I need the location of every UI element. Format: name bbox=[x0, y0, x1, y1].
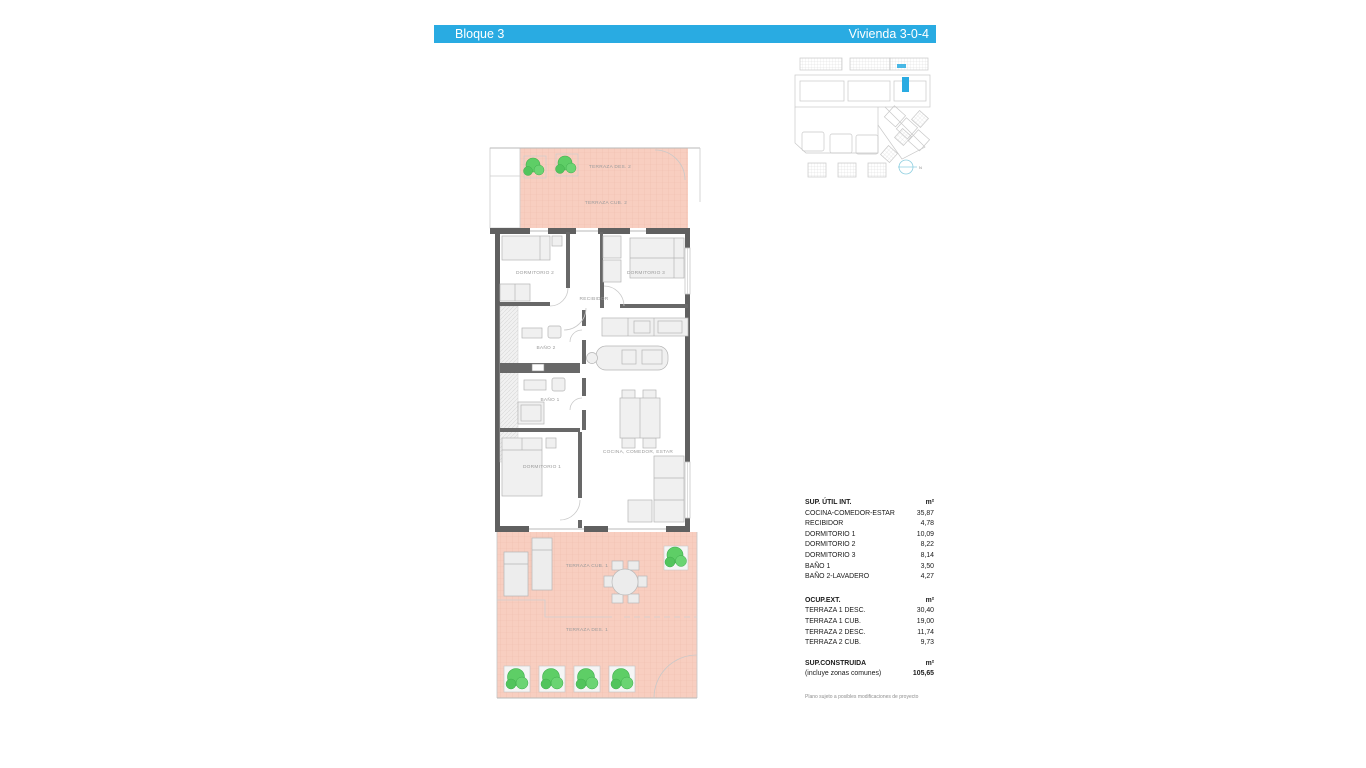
block-label: Bloque 3 bbox=[434, 27, 504, 41]
terraza-des-2-label: TERRAZA DES. 2 bbox=[589, 164, 631, 170]
terraza-cub-1-label: TERRAZA CUB. 1 bbox=[566, 563, 608, 569]
table-title: OCUP.EXT. bbox=[805, 597, 840, 604]
plant-icon bbox=[664, 546, 688, 570]
kitchen-counter bbox=[602, 318, 688, 336]
table-header: SUP.CONSTRUIDA m² bbox=[805, 660, 934, 671]
sofa bbox=[628, 456, 684, 522]
terraza-des-1-label: TERRAZA DES. 1 bbox=[566, 627, 608, 633]
bano-1-label: BAÑO 1 bbox=[540, 396, 559, 403]
table-row: RECIBIDOR4,78 bbox=[805, 520, 934, 531]
total-built-area: 105,65 bbox=[913, 670, 934, 677]
table-row: TERRAZA 1 DESC.30,40 bbox=[805, 607, 934, 618]
table-title: SUP.CONSTRUIDA bbox=[805, 660, 866, 667]
plant-icon bbox=[539, 666, 565, 692]
dormitorio-1-label: DORMITORIO 1 bbox=[523, 464, 561, 470]
floor-plan: TERRAZA DES. 2 TERRAZA CUB. 2 bbox=[488, 140, 702, 700]
table-header: SUP. ÚTIL INT. m² bbox=[805, 499, 934, 510]
table-unit: m² bbox=[926, 499, 934, 506]
site-key-plan: N bbox=[790, 55, 935, 185]
surface-tables: SUP. ÚTIL INT. m² COCINA-COMEDOR-ESTAR35… bbox=[805, 499, 934, 700]
neighbor-strip bbox=[490, 148, 520, 228]
recibidor-label: RECIBIDOR bbox=[580, 296, 609, 302]
north-arrow-icon: N bbox=[898, 160, 922, 174]
table-unit: m² bbox=[926, 660, 934, 667]
dining-table bbox=[620, 390, 660, 448]
terraza-cub-2-label: TERRAZA CUB. 2 bbox=[585, 200, 627, 206]
kitchen-island bbox=[587, 346, 669, 370]
bano-2-label: BAÑO 2 bbox=[536, 344, 555, 351]
bed bbox=[502, 236, 562, 260]
wardrobe bbox=[603, 236, 621, 282]
table-row: BAÑO 2-LAVADERO4,27 bbox=[805, 573, 934, 584]
svg-text:N: N bbox=[919, 165, 922, 170]
table-row: COCINA-COMEDOR-ESTAR35,87 bbox=[805, 510, 934, 521]
table-unit: m² bbox=[926, 597, 934, 604]
table-row: TERRAZA 2 DESC.11,74 bbox=[805, 629, 934, 640]
plant-icon bbox=[609, 666, 635, 692]
table-row: TERRAZA 2 CUB.9,73 bbox=[805, 639, 934, 650]
table-row: (incluye zonas comunes) 105,65 bbox=[805, 670, 934, 681]
terrace-2-area bbox=[520, 148, 688, 228]
unit-highlight-terrace bbox=[897, 64, 906, 68]
bathroom-fixtures bbox=[522, 326, 561, 338]
cocina-label: COCINA, COMEDOR, ESTAR bbox=[603, 449, 673, 455]
unit-highlight bbox=[902, 77, 909, 92]
unit-label: Vivienda 3-0-4 bbox=[849, 27, 936, 41]
table-row: BAÑO 13,50 bbox=[805, 563, 934, 574]
plant-icon bbox=[504, 666, 530, 692]
wardrobe bbox=[500, 284, 530, 301]
ocup-ext-table: OCUP.EXT. m² TERRAZA 1 DESC.30,40 TERRAZ… bbox=[805, 597, 934, 650]
table-row: TERRAZA 1 CUB.19,00 bbox=[805, 618, 934, 629]
floor-plan-sheet: Bloque 3 Vivienda 3-0-4 bbox=[0, 0, 1366, 768]
disclaimer-note: Plano sujeto a posibles modificaciones d… bbox=[805, 694, 934, 700]
table-title: SUP. ÚTIL INT. bbox=[805, 499, 851, 506]
sup-construida-table: SUP.CONSTRUIDA m² (incluye zonas comunes… bbox=[805, 660, 934, 681]
table-row: DORMITORIO 38,14 bbox=[805, 552, 934, 563]
sup-util-table: SUP. ÚTIL INT. m² COCINA-COMEDOR-ESTAR35… bbox=[805, 499, 934, 584]
title-bar: Bloque 3 Vivienda 3-0-4 bbox=[434, 25, 936, 43]
table-header: OCUP.EXT. m² bbox=[805, 597, 934, 608]
table-row: DORMITORIO 110,09 bbox=[805, 531, 934, 542]
plant-icon bbox=[574, 666, 600, 692]
dormitorio-2-label: DORMITORIO 2 bbox=[516, 270, 554, 276]
table-row: DORMITORIO 28,22 bbox=[805, 541, 934, 552]
dormitorio-3-label: DORMITORIO 3 bbox=[627, 270, 665, 276]
